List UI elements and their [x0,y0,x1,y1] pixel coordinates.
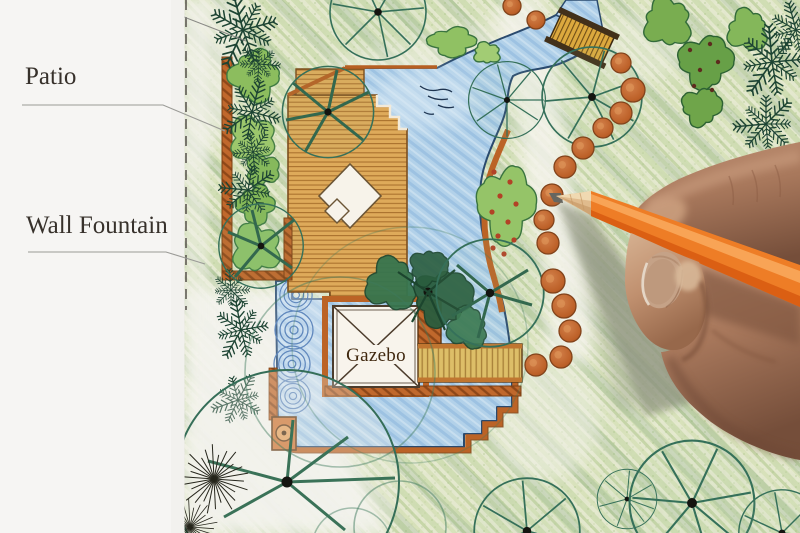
svg-text:Gazebo: Gazebo [346,345,406,366]
svg-text:Wall Fountain: Wall Fountain [26,212,168,239]
svg-text:Patio: Patio [25,63,76,90]
